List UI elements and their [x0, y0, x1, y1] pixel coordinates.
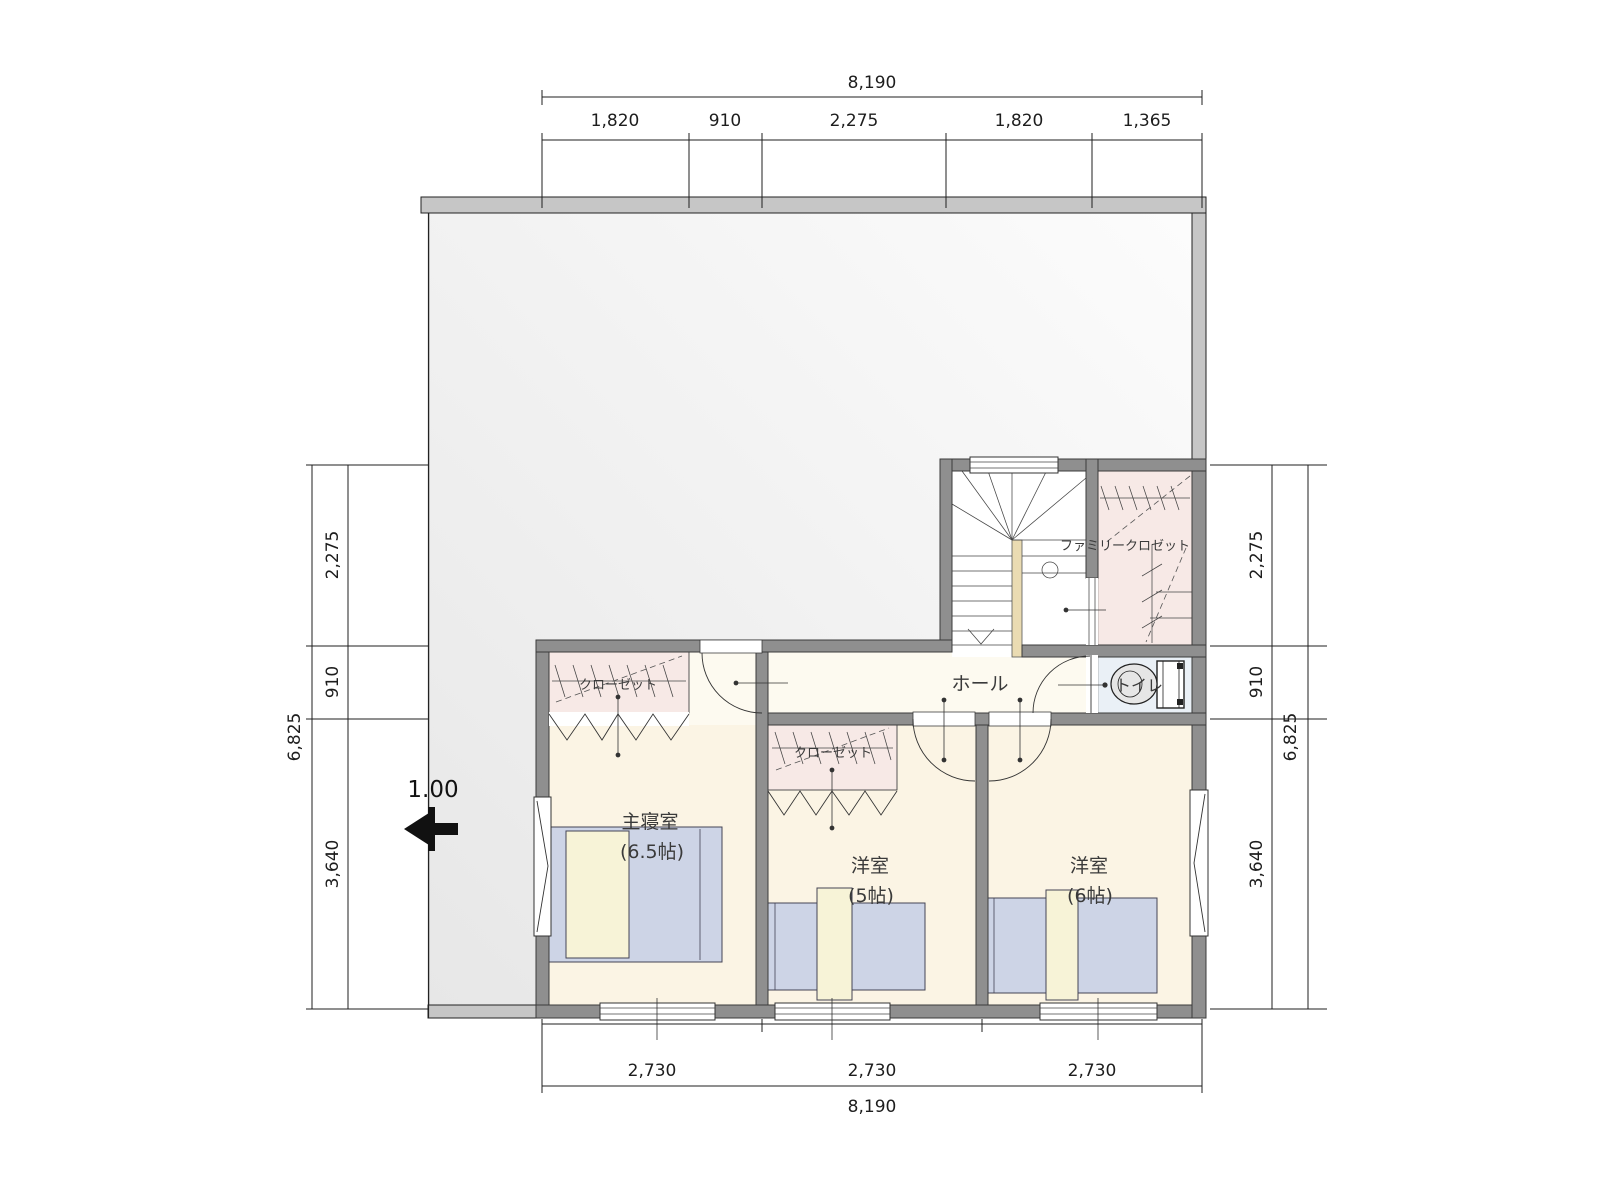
slope-arrow-label: 1.00	[407, 777, 458, 803]
label-west6-size: (6帖)	[1067, 885, 1113, 907]
dim-right-total: 6,825	[1281, 713, 1301, 762]
west6-south-window	[1040, 1003, 1157, 1020]
wall-master-west5	[756, 652, 768, 1005]
label-west5-closet: クローゼット	[794, 746, 872, 761]
label-master-size: (6.5帖)	[620, 841, 684, 863]
dim-right-seg1: 910	[1247, 666, 1267, 698]
wall-family-closet-west	[1086, 459, 1098, 578]
roof-edge-top	[421, 197, 1206, 213]
dim-top-seg0: 1,820	[591, 111, 640, 131]
dim-right-seg2: 3,640	[1247, 840, 1267, 889]
master-vestibule-floor	[689, 652, 756, 725]
roof-edge-right	[1192, 213, 1206, 459]
dim-bottom-seg0: 2,730	[628, 1061, 677, 1081]
wall-west5-west6	[976, 713, 988, 1005]
dim-top-seg2: 2,275	[830, 111, 879, 131]
dim-bottom-seg2: 2,730	[1068, 1061, 1117, 1081]
dim-left-total: 6,825	[285, 713, 305, 762]
roof-edge-bottom-left	[428, 1005, 549, 1018]
dim-top-seg4: 1,365	[1123, 111, 1172, 131]
label-west6-name: 洋室	[1070, 855, 1108, 877]
dim-left-seg1: 910	[323, 666, 343, 698]
stair-newel-wall	[1012, 540, 1022, 657]
label-west5-size: (5帖)	[848, 885, 894, 907]
dim-bottom-seg1: 2,730	[848, 1061, 897, 1081]
toilet-door-opening	[1086, 655, 1098, 713]
label-master-name: 主寝室	[621, 811, 678, 833]
master-west-window	[534, 797, 551, 936]
floor-plan-canvas: 主寝室 (6.5帖) 洋室 (5帖) 洋室 (6帖) ホール トイレ ファミリー…	[0, 0, 1600, 1200]
stair-north-window	[970, 457, 1058, 473]
floor-plan-page: 主寝室 (6.5帖) 洋室 (5帖) 洋室 (6帖) ホール トイレ ファミリー…	[0, 0, 1600, 1200]
wall-toilet-north	[1022, 645, 1206, 657]
wall-stair-west	[940, 459, 952, 652]
dim-bottom-total: 8,190	[848, 1097, 897, 1117]
west5-south-window	[775, 1003, 890, 1020]
dim-top-seg3: 1,820	[995, 111, 1044, 131]
hall-floor	[768, 652, 1086, 713]
west5-bed-pillow	[817, 888, 852, 1000]
west6-east-window	[1190, 790, 1208, 936]
dim-left-seg0: 2,275	[323, 531, 343, 580]
dim-right-seg0: 2,275	[1247, 531, 1267, 580]
slope-arrow-head	[404, 811, 432, 847]
label-family-closet: ファミリークロゼット	[1060, 539, 1190, 554]
label-toilet: トイレ	[1115, 676, 1163, 695]
dim-left-seg2: 3,640	[323, 840, 343, 889]
master-closet-opening	[549, 712, 689, 726]
master-south-window	[600, 1003, 715, 1020]
label-master-closet: クローゼット	[579, 678, 657, 693]
west5-bed	[766, 888, 925, 1000]
family-closet-floor	[1098, 471, 1192, 645]
master-door-leaf	[700, 640, 762, 653]
dim-top-seg1: 910	[709, 111, 741, 131]
label-hall: ホール	[951, 673, 1008, 695]
family-closet-opening	[1086, 578, 1098, 645]
label-west5-name: 洋室	[851, 855, 889, 877]
dim-top-total: 8,190	[848, 73, 897, 93]
wall-hall-south	[768, 713, 1206, 725]
